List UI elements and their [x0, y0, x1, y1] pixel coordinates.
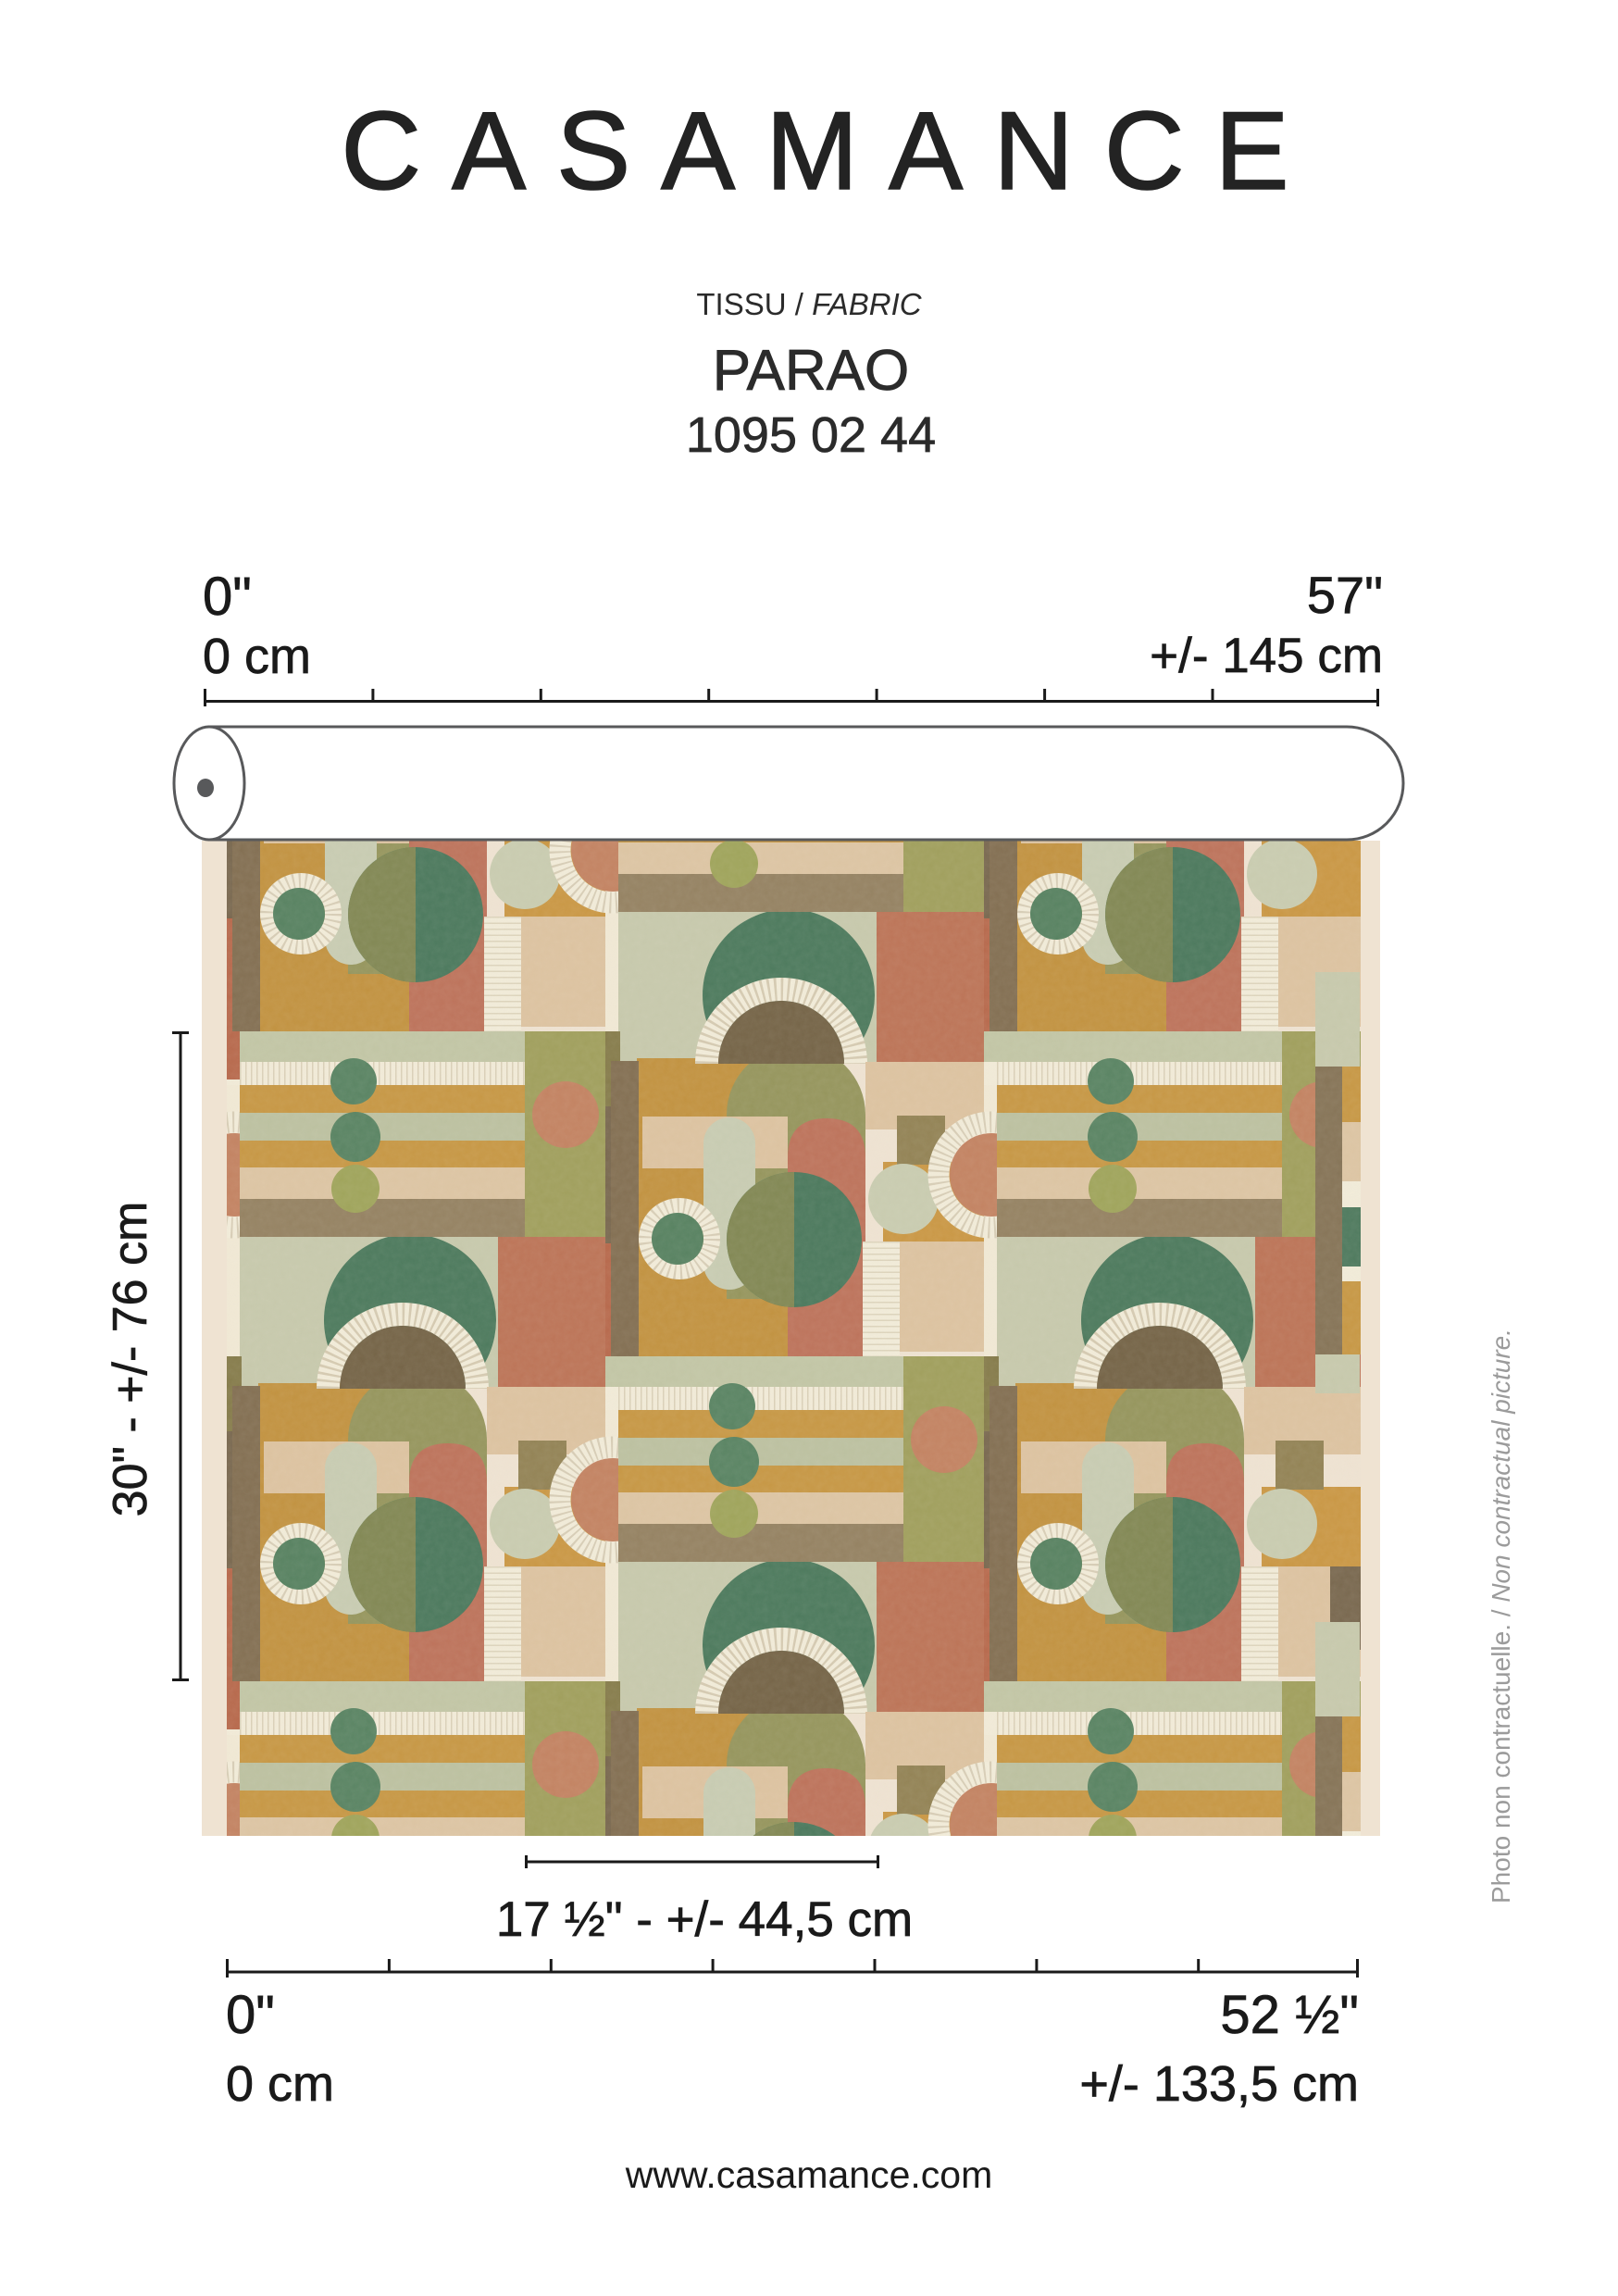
- svg-text:52 ½": 52 ½": [1220, 1985, 1359, 2045]
- svg-text:0 cm: 0 cm: [203, 629, 311, 684]
- svg-text:CASAMANCE: CASAMANCE: [341, 89, 1319, 213]
- svg-text:57": 57": [1307, 566, 1383, 624]
- svg-text:TISSU / FABRIC: TISSU / FABRIC: [696, 287, 922, 321]
- svg-text:PARAO: PARAO: [713, 339, 909, 403]
- svg-text:17 ½" - +/- 44,5 cm: 17 ½" - +/- 44,5 cm: [496, 1892, 913, 1947]
- svg-text:0": 0": [203, 567, 252, 627]
- svg-text:0": 0": [226, 1985, 275, 2045]
- svg-text:1095 02 44: 1095 02 44: [686, 407, 936, 463]
- svg-text:Photo non contractuelle. / Non: Photo non contractuelle. / Non contractu…: [1487, 1329, 1515, 1903]
- svg-text:30" - +/- 76 cm: 30" - +/- 76 cm: [104, 1202, 157, 1517]
- svg-text:+/- 145 cm: +/- 145 cm: [1150, 629, 1383, 683]
- svg-text:www.casamance.com: www.casamance.com: [625, 2153, 992, 2196]
- svg-text:+/- 133,5 cm: +/- 133,5 cm: [1079, 2056, 1359, 2112]
- svg-text:0 cm: 0 cm: [226, 2056, 334, 2112]
